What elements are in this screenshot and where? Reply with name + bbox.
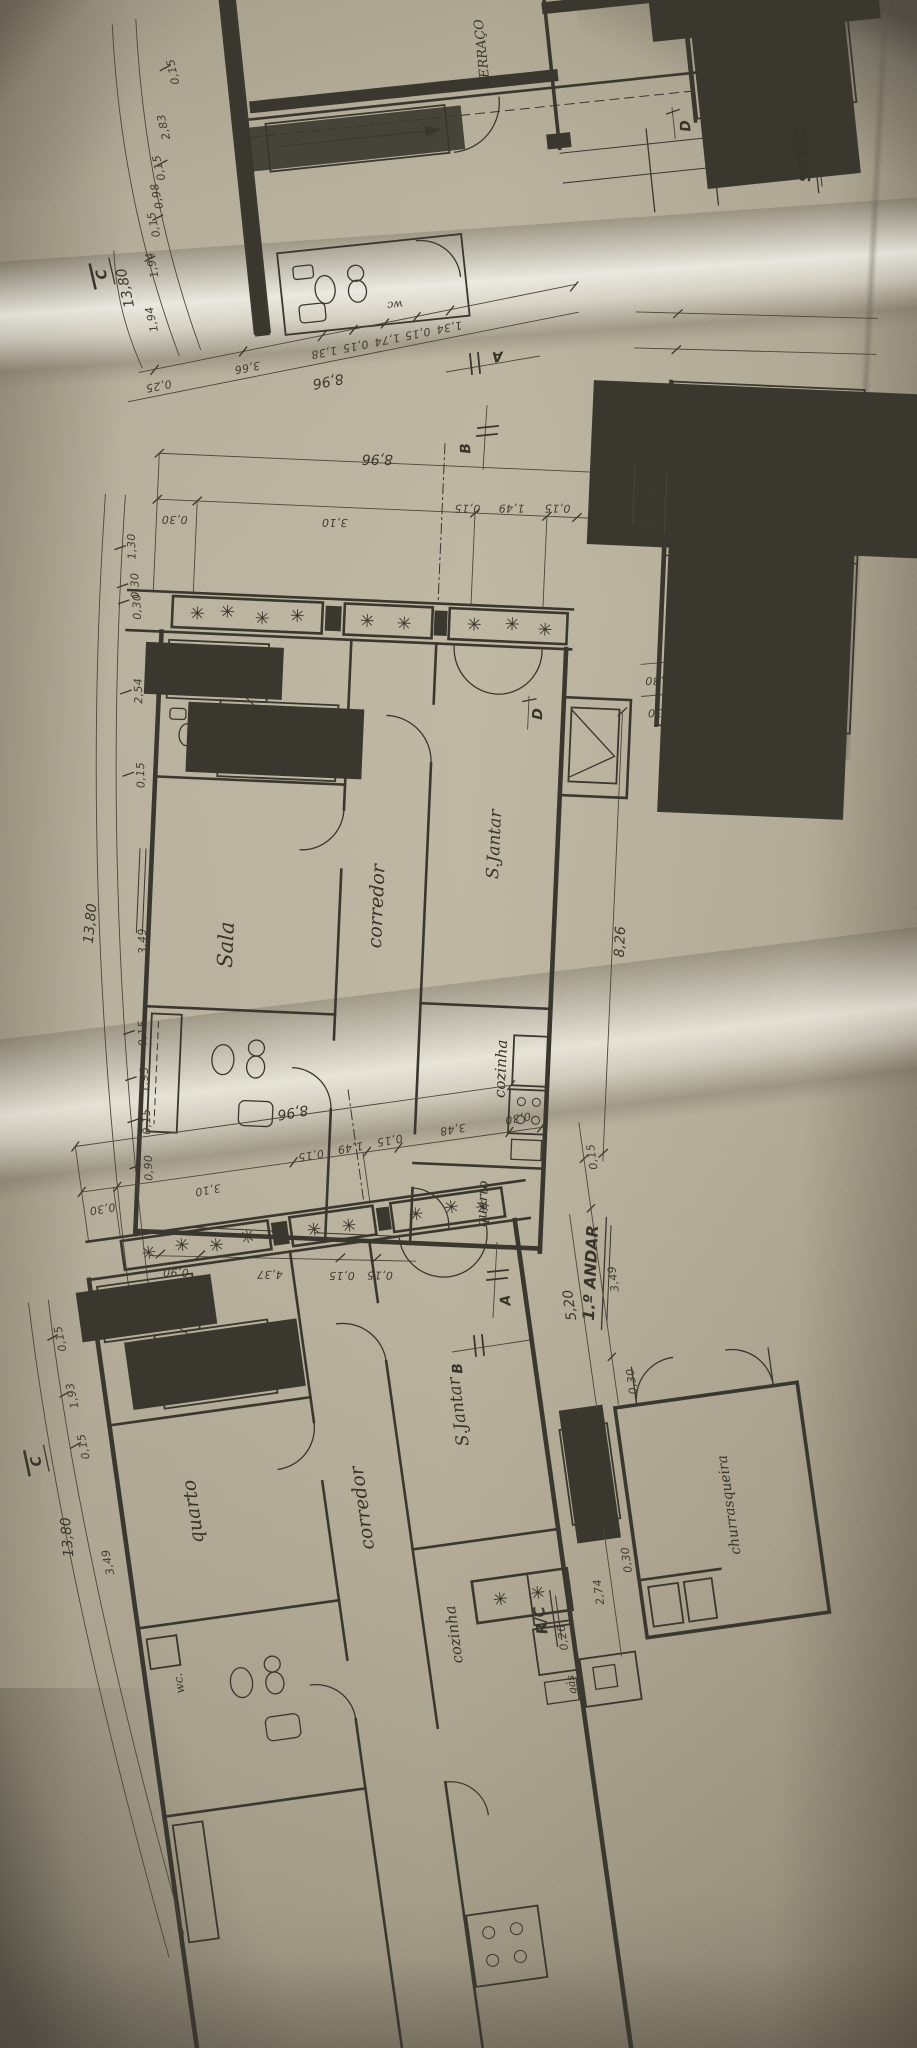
room-label-terraco: TERRAÇO — [472, 18, 494, 87]
rc-annex-dims: 0,15 3,49 0,30 5,20 2,74 0,26 0,30 — [486, 1119, 676, 1665]
room-label-sjantar: S.Jantar — [483, 808, 506, 879]
room-label-corredor-rc: corredor — [345, 1463, 379, 1551]
svg-text:0,15: 0,15 — [145, 210, 164, 238]
svg-text:0,25: 0,25 — [145, 377, 173, 395]
svg-text:A: A — [491, 348, 504, 365]
svg-text:0,30: 0,30 — [627, 487, 653, 500]
svg-text:1,30: 1,30 — [125, 533, 139, 559]
svg-text:0,30: 0,30 — [161, 513, 187, 526]
svg-text:0,30: 0,30 — [624, 1367, 641, 1395]
svg-text:1,74: 1,74 — [373, 331, 401, 349]
svg-text:13,80: 13,80 — [81, 903, 101, 945]
svg-text:0,15: 0,15 — [454, 502, 480, 515]
svg-text:2,74: 2,74 — [591, 1578, 608, 1606]
svg-text:0,98: 0,98 — [148, 182, 167, 210]
section-mark-a-lower: A — [487, 1242, 515, 1318]
room-label-cozinha-rc: cozinha — [441, 1604, 467, 1664]
section-mark-c: C — [89, 258, 114, 288]
double-door-arcs — [452, 646, 542, 696]
svg-text:8,96: 8,96 — [311, 370, 345, 392]
svg-text:0,15: 0,15 — [51, 1325, 69, 1353]
fireplace — [560, 697, 631, 798]
section-mark-b-lower: B — [450, 1335, 530, 1374]
svg-text:4,37: 4,37 — [257, 1268, 283, 1281]
svg-text:13,80: 13,80 — [58, 1516, 77, 1557]
svg-text:B: B — [450, 1362, 467, 1374]
room-label-corredor: corredor — [364, 862, 390, 949]
svg-text:0,15: 0,15 — [134, 762, 148, 788]
svg-text:0,15: 0,15 — [297, 1147, 325, 1164]
svg-text:C: C — [93, 267, 111, 281]
svg-text:1,49: 1,49 — [498, 502, 524, 515]
svg-text:0,30: 0,30 — [504, 1109, 532, 1126]
stove-icon — [466, 1906, 547, 1987]
andar1-wc-fixtures — [147, 1013, 277, 1136]
andar1-stairs — [163, 640, 341, 781]
sotao-roof-deck — [679, 0, 857, 121]
svg-text:A: A — [498, 1294, 515, 1307]
bidet-icon — [263, 1655, 281, 1673]
room-label-sjantar-rc: S.Jantar — [444, 1375, 474, 1447]
plan-title-rc: R/C — [528, 1590, 563, 1649]
svg-text:0,15: 0,15 — [404, 325, 432, 343]
door-arc — [300, 808, 344, 852]
svg-text:0,15: 0,15 — [136, 1020, 150, 1046]
plan-rc: 8,96 0,30 3,10 0,15 1,49 0,15 3,48 0,30 — [0, 1034, 888, 2048]
svg-text:2,54: 2,54 — [132, 678, 146, 704]
sink-icon — [293, 265, 314, 280]
svg-text:R/C: R/C — [530, 1605, 552, 1635]
svg-text:3,49: 3,49 — [99, 1548, 117, 1576]
toilet-icon — [211, 1044, 234, 1075]
sink-icon — [170, 708, 186, 720]
andar1-roof-deck — [656, 382, 865, 734]
rc-lower-fixtures — [145, 1569, 620, 2026]
label-gas: gás — [564, 1674, 580, 1695]
svg-text:0,30: 0,30 — [644, 516, 670, 529]
svg-text:1,94: 1,94 — [143, 251, 162, 279]
andar1-right-dim: 8,26 — [599, 708, 639, 1162]
room-label-churrasqueira: churrasqueira — [715, 1454, 745, 1556]
svg-text:3,66: 3,66 — [233, 359, 261, 377]
grill-counter — [648, 1583, 683, 1627]
rc-wc-fixtures — [147, 1620, 302, 1756]
rc-stairs — [97, 1264, 277, 1416]
room-label-wc: wc — [387, 298, 404, 313]
svg-text:0,15: 0,15 — [75, 1432, 93, 1460]
svg-text:3,49: 3,49 — [605, 1265, 622, 1293]
section-mark-c-rc: C — [24, 1445, 49, 1475]
tub-icon — [299, 303, 327, 324]
room-label-sala: Sala — [213, 921, 239, 968]
svg-text:2,83: 2,83 — [155, 113, 174, 141]
svg-text:8,96: 8,96 — [276, 1101, 310, 1122]
sink-icon — [265, 1713, 302, 1741]
sotao-left-dims: 0,15 2,83 0,15 0,98 0,15 1,94 1,94 13,80 — [88, 15, 212, 370]
bidet-icon — [347, 264, 365, 282]
svg-text:D: D — [677, 119, 694, 132]
svg-text:1,49: 1,49 — [336, 1139, 364, 1156]
svg-text:0,30: 0,30 — [130, 593, 144, 619]
svg-text:3,49: 3,49 — [136, 928, 150, 954]
svg-text:0,15: 0,15 — [367, 1269, 393, 1282]
floor-plan-drawing: TERRAÇO wc — [0, 0, 917, 2048]
churrasqueira-annex: churrasqueira — [609, 1341, 829, 1638]
svg-text:3,48: 3,48 — [439, 1121, 467, 1138]
svg-text:0,26: 0,26 — [555, 1624, 572, 1652]
blueprint-photo: TERRAÇO wc — [0, 0, 917, 2048]
svg-text:0,15: 0,15 — [140, 1108, 154, 1134]
toilet-icon — [314, 275, 337, 305]
svg-text:0,90: 0,90 — [142, 1155, 156, 1181]
room-label-wc-rc: wc. — [171, 1672, 188, 1695]
door-arc — [311, 1679, 356, 1724]
svg-text:1,93: 1,93 — [63, 1381, 81, 1409]
door-arc — [337, 1318, 387, 1368]
rc-exterior-planter — [472, 1568, 573, 1623]
section-mark-b-upper: B — [458, 405, 498, 470]
svg-text:1,38: 1,38 — [310, 344, 338, 362]
shower-icon — [147, 1635, 181, 1669]
svg-text:B: B — [458, 442, 475, 454]
svg-text:0,15: 0,15 — [329, 1269, 355, 1282]
svg-text:1,94: 1,94 — [143, 305, 162, 333]
svg-text:D: D — [530, 708, 546, 720]
door-arc — [445, 1777, 488, 1820]
svg-text:0,15: 0,15 — [584, 1143, 601, 1171]
section-mark-d: D — [666, 105, 695, 140]
svg-text:1,93: 1,93 — [138, 1066, 152, 1092]
svg-text:3,10: 3,10 — [321, 516, 347, 529]
door-arc — [417, 237, 461, 281]
svg-text:13,80: 13,80 — [114, 266, 139, 309]
svg-text:8,26: 8,26 — [612, 926, 629, 958]
svg-text:3,10: 3,10 — [194, 1181, 222, 1198]
rc-exterior-stair — [559, 1423, 620, 1525]
svg-text:C: C — [28, 1454, 46, 1468]
wall-pier — [546, 132, 571, 149]
svg-text:0,15: 0,15 — [544, 502, 570, 515]
section-mark-a-upper: A — [446, 348, 540, 374]
svg-text:0,15: 0,15 — [341, 337, 369, 355]
svg-text:0,30: 0,30 — [618, 1546, 635, 1574]
svg-text:0,15: 0,15 — [164, 57, 183, 85]
svg-text:1,34: 1,34 — [435, 318, 463, 336]
door-arc — [272, 1422, 319, 1469]
svg-text:0,15: 0,15 — [150, 153, 169, 181]
bidet-icon — [248, 1040, 265, 1057]
svg-text:5,20: 5,20 — [560, 1289, 580, 1322]
door-arc — [385, 715, 433, 763]
svg-text:0,30: 0,30 — [88, 1200, 116, 1217]
toilet-icon — [229, 1666, 255, 1699]
svg-text:8,96: 8,96 — [362, 451, 393, 467]
section-mark-d-andar1: D — [522, 695, 547, 730]
room-label-quarto-rc: quarto — [178, 1478, 209, 1544]
sotao-wc: wc — [277, 234, 470, 335]
